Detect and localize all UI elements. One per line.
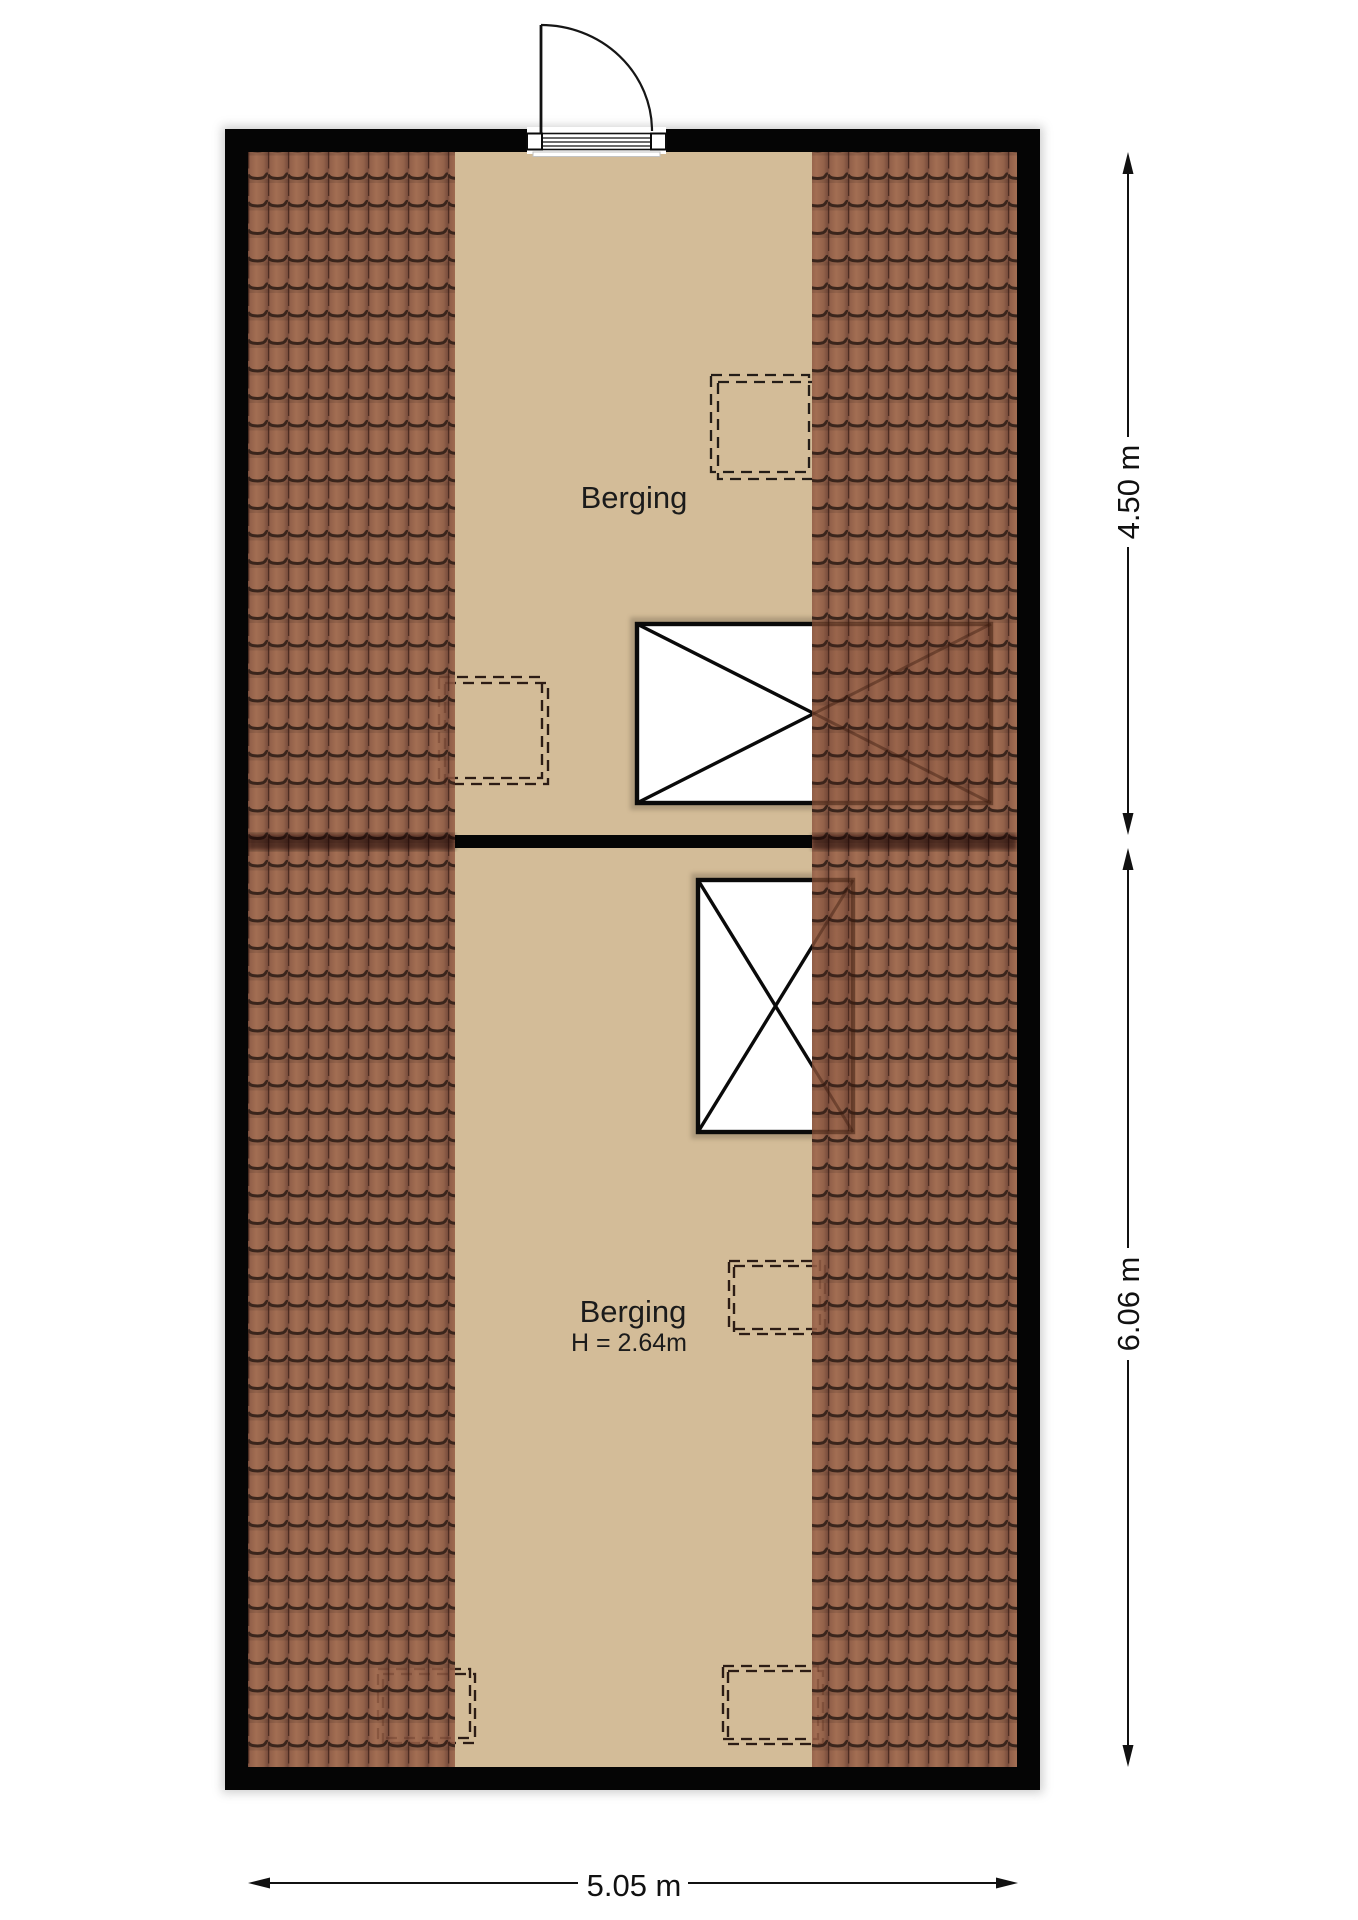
svg-text:4.50 m: 4.50 m <box>1111 445 1146 540</box>
svg-text:5.05 m: 5.05 m <box>587 1868 682 1903</box>
svg-text:Berging: Berging <box>581 480 688 515</box>
svg-text:H = 2.64m: H = 2.64m <box>571 1329 687 1357</box>
svg-text:6.06 m: 6.06 m <box>1111 1257 1146 1352</box>
svg-text:Berging: Berging <box>580 1294 687 1329</box>
